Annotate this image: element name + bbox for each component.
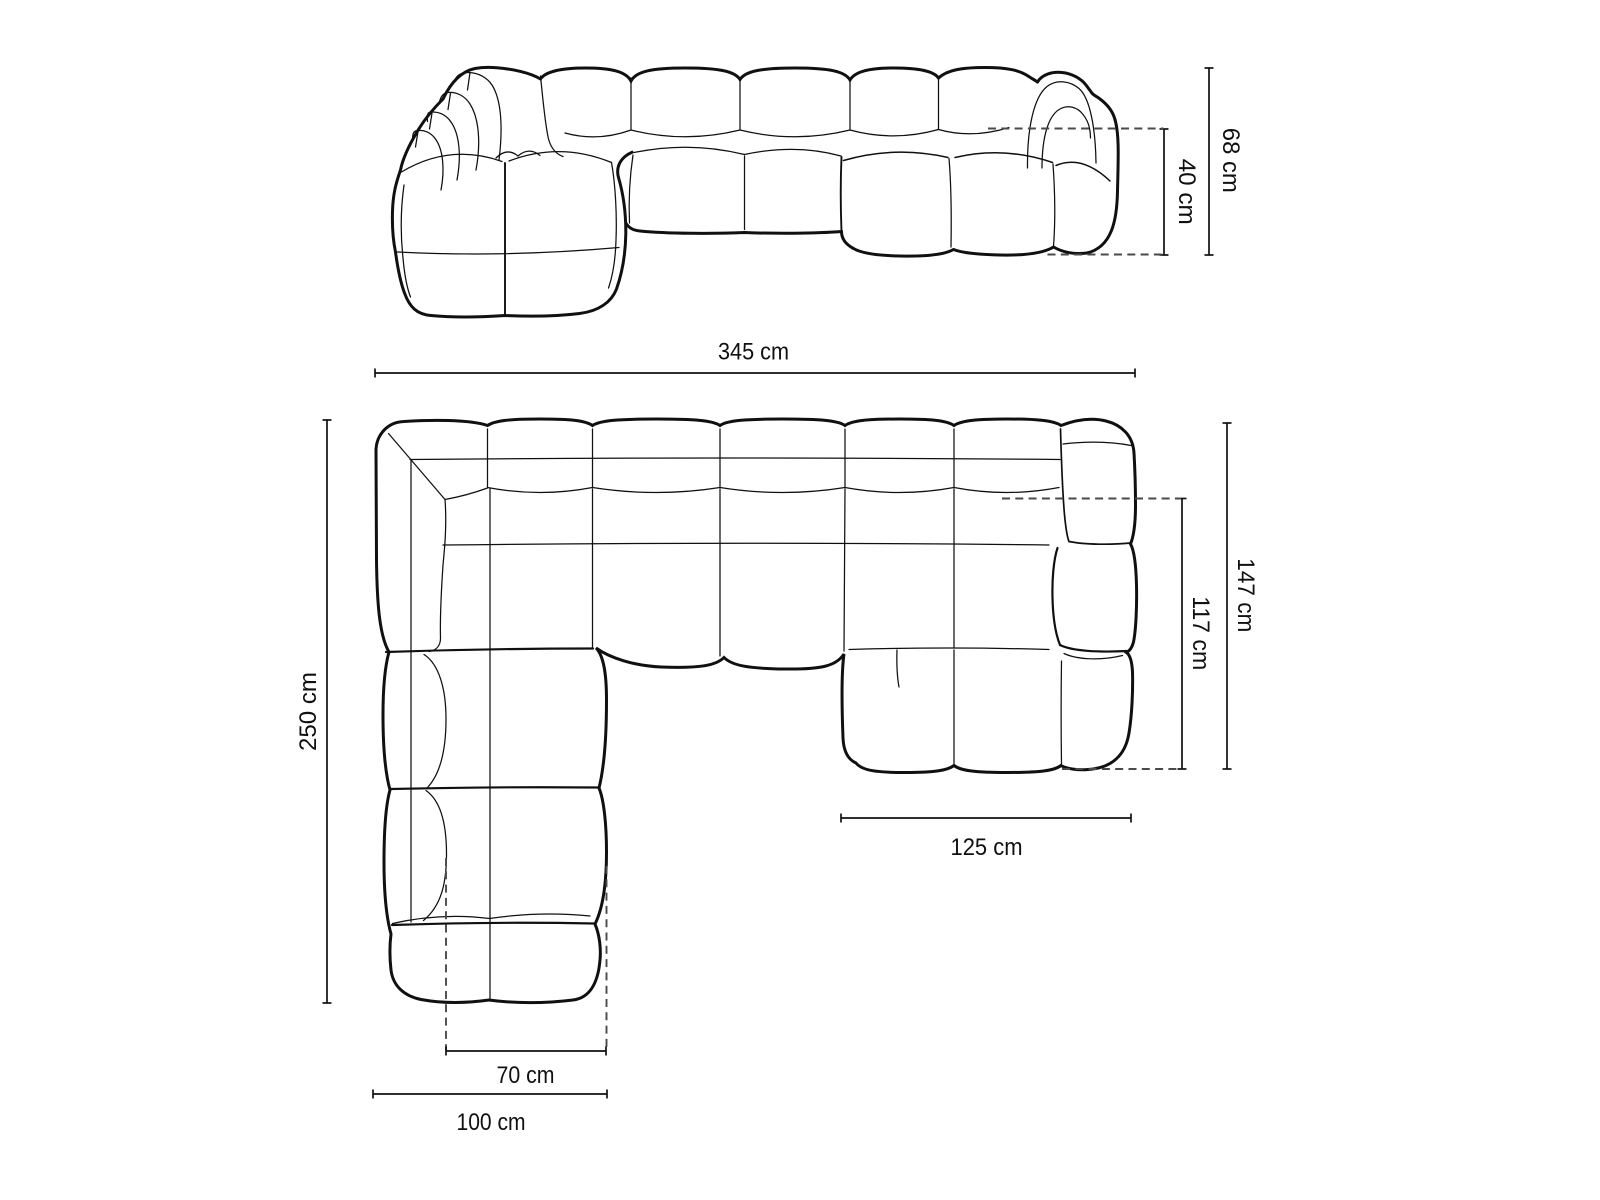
svg-text:70 cm: 70 cm — [497, 1062, 555, 1089]
svg-text:117 cm: 117 cm — [1187, 596, 1214, 670]
svg-text:100 cm: 100 cm — [457, 1109, 526, 1136]
svg-text:40 cm: 40 cm — [1173, 159, 1200, 225]
svg-text:125 cm: 125 cm — [951, 834, 1023, 861]
svg-text:147 cm: 147 cm — [1232, 558, 1259, 632]
svg-text:250 cm: 250 cm — [295, 672, 322, 751]
svg-text:68 cm: 68 cm — [1217, 128, 1244, 193]
svg-text:345 cm: 345 cm — [718, 339, 789, 366]
